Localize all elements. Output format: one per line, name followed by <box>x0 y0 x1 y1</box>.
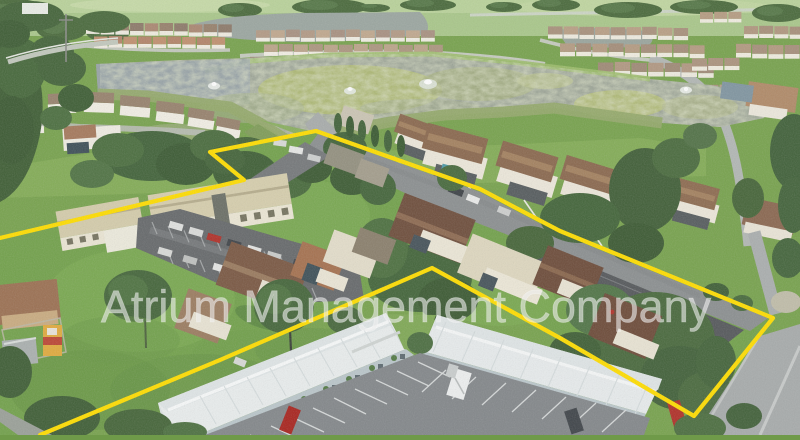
svg-text:Atrium Management Company: Atrium Management Company <box>101 281 712 332</box>
